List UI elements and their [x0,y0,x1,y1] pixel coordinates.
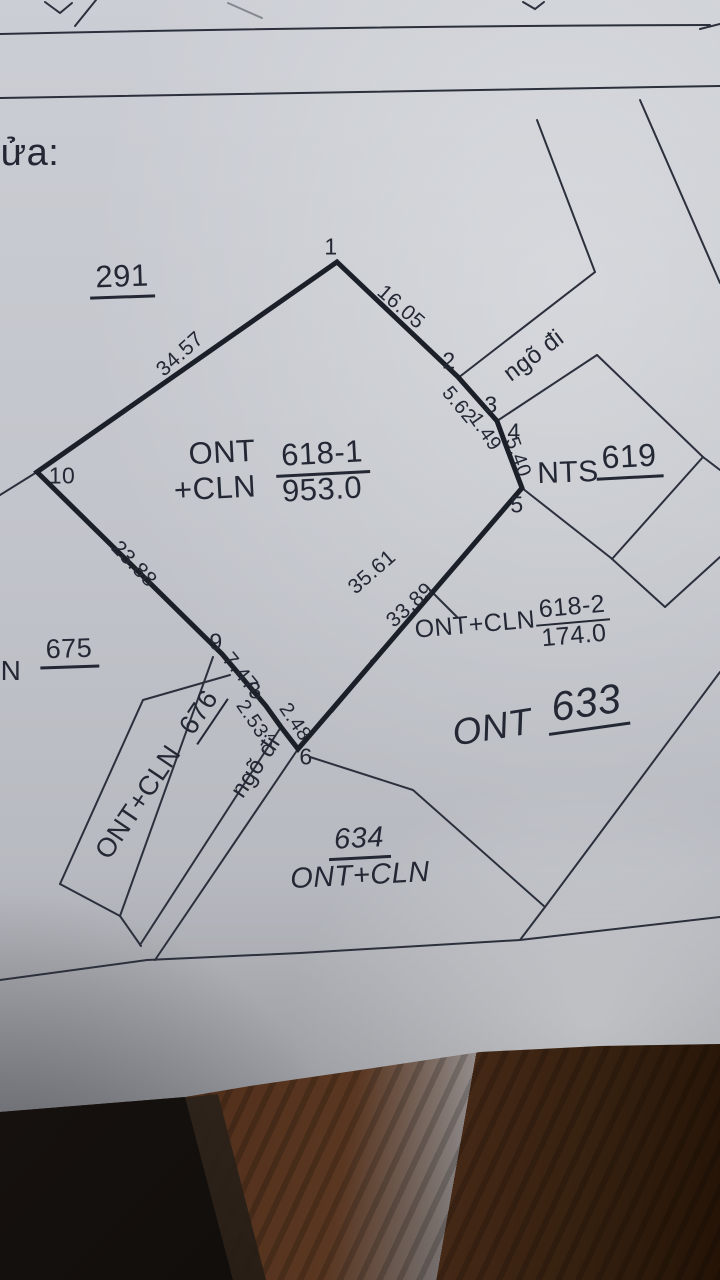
vertex-9: 9 [209,631,222,654]
junction-stub [520,907,545,940]
west-boundary-stub [0,472,37,495]
vertex-7: 7 [267,733,277,750]
parcel-633-east-line [665,557,720,607]
parcel-618-1-outline [37,262,522,749]
parcel-619-type: NTS [537,457,600,489]
parcel-619-label: 619 [595,438,663,473]
parcel-633-label: 633 [543,677,630,729]
vertex-2: 2 [442,350,455,373]
vertex-10: 10 [49,465,76,488]
top-mark-slash [75,0,96,26]
top-mark-left [45,2,72,13]
parcel-675-number: 675 [39,632,99,669]
vertex-6: 6 [299,746,312,769]
top-mark-chevron [523,2,544,9]
parcel-618-1-type1: ONT [188,435,256,469]
top-mark-faint [228,3,262,18]
parcel-291-label: 291 [89,259,155,292]
parcel-619-east-stub [703,457,720,470]
cadastral-map-photo: ửa: 291 N 675 ONT+CLN 676 NTS 619 ONT 61… [0,0,720,1280]
vertex-5: 5 [510,494,523,517]
parcel-618-1-area: 953.0 [281,471,363,506]
parcel-618-2-ne-line [522,488,665,607]
vertex-1: 1 [324,236,337,259]
parcel-676-end-cap [120,916,141,946]
parcel-618-2-area: 174.0 [541,621,608,652]
parcel-618-2-label: 618-2 [534,591,610,622]
vertex-3: 3 [484,394,497,417]
alley-top-west-edge [458,120,595,378]
parcel-675-south-line [60,884,120,916]
parcel-634-label: 634 [327,823,390,855]
south-boundary-line [0,917,720,980]
parcel-675-label: 675 [39,634,98,663]
header-rule-top [0,25,710,34]
parcel-618-1-type2: +CLN [173,470,257,505]
parcel-618-1-label: 618-1 [274,435,369,471]
parcel-291-number: 291 [89,257,156,299]
parcel-619-number: 619 [595,436,664,480]
header-partial-text: ửa: [1,134,60,172]
alley-top-east-edge [640,100,720,283]
header-rule-bottom [0,86,720,98]
parcel-675-prefix: N [1,657,22,685]
parcel-634-type: ONT+CLN [290,858,431,894]
alley-bottom-east-edge [155,749,298,960]
parcel-634-number: 634 [327,821,391,861]
